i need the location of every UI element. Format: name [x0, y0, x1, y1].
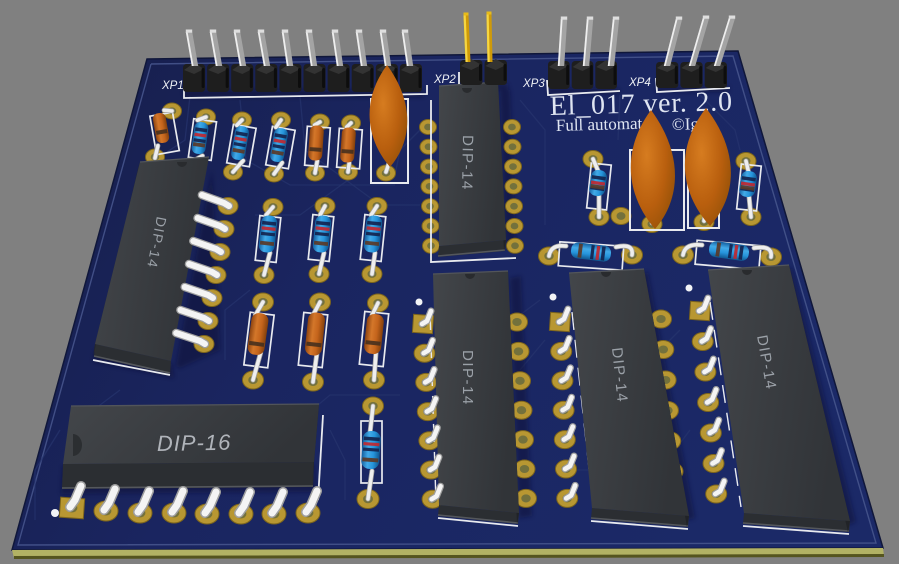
svg-text:DIP-14: DIP-14 [459, 350, 476, 406]
svg-text:XP3: XP3 [522, 78, 545, 90]
svg-text:XP4: XP4 [628, 77, 651, 89]
svg-text:DIP-16: DIP-16 [157, 430, 232, 456]
svg-text:XP1: XP1 [161, 80, 184, 92]
svg-text:DIP-14: DIP-14 [458, 135, 476, 191]
svg-text:Full automat: Full automat [556, 114, 643, 135]
svg-text:XP2: XP2 [433, 74, 456, 86]
